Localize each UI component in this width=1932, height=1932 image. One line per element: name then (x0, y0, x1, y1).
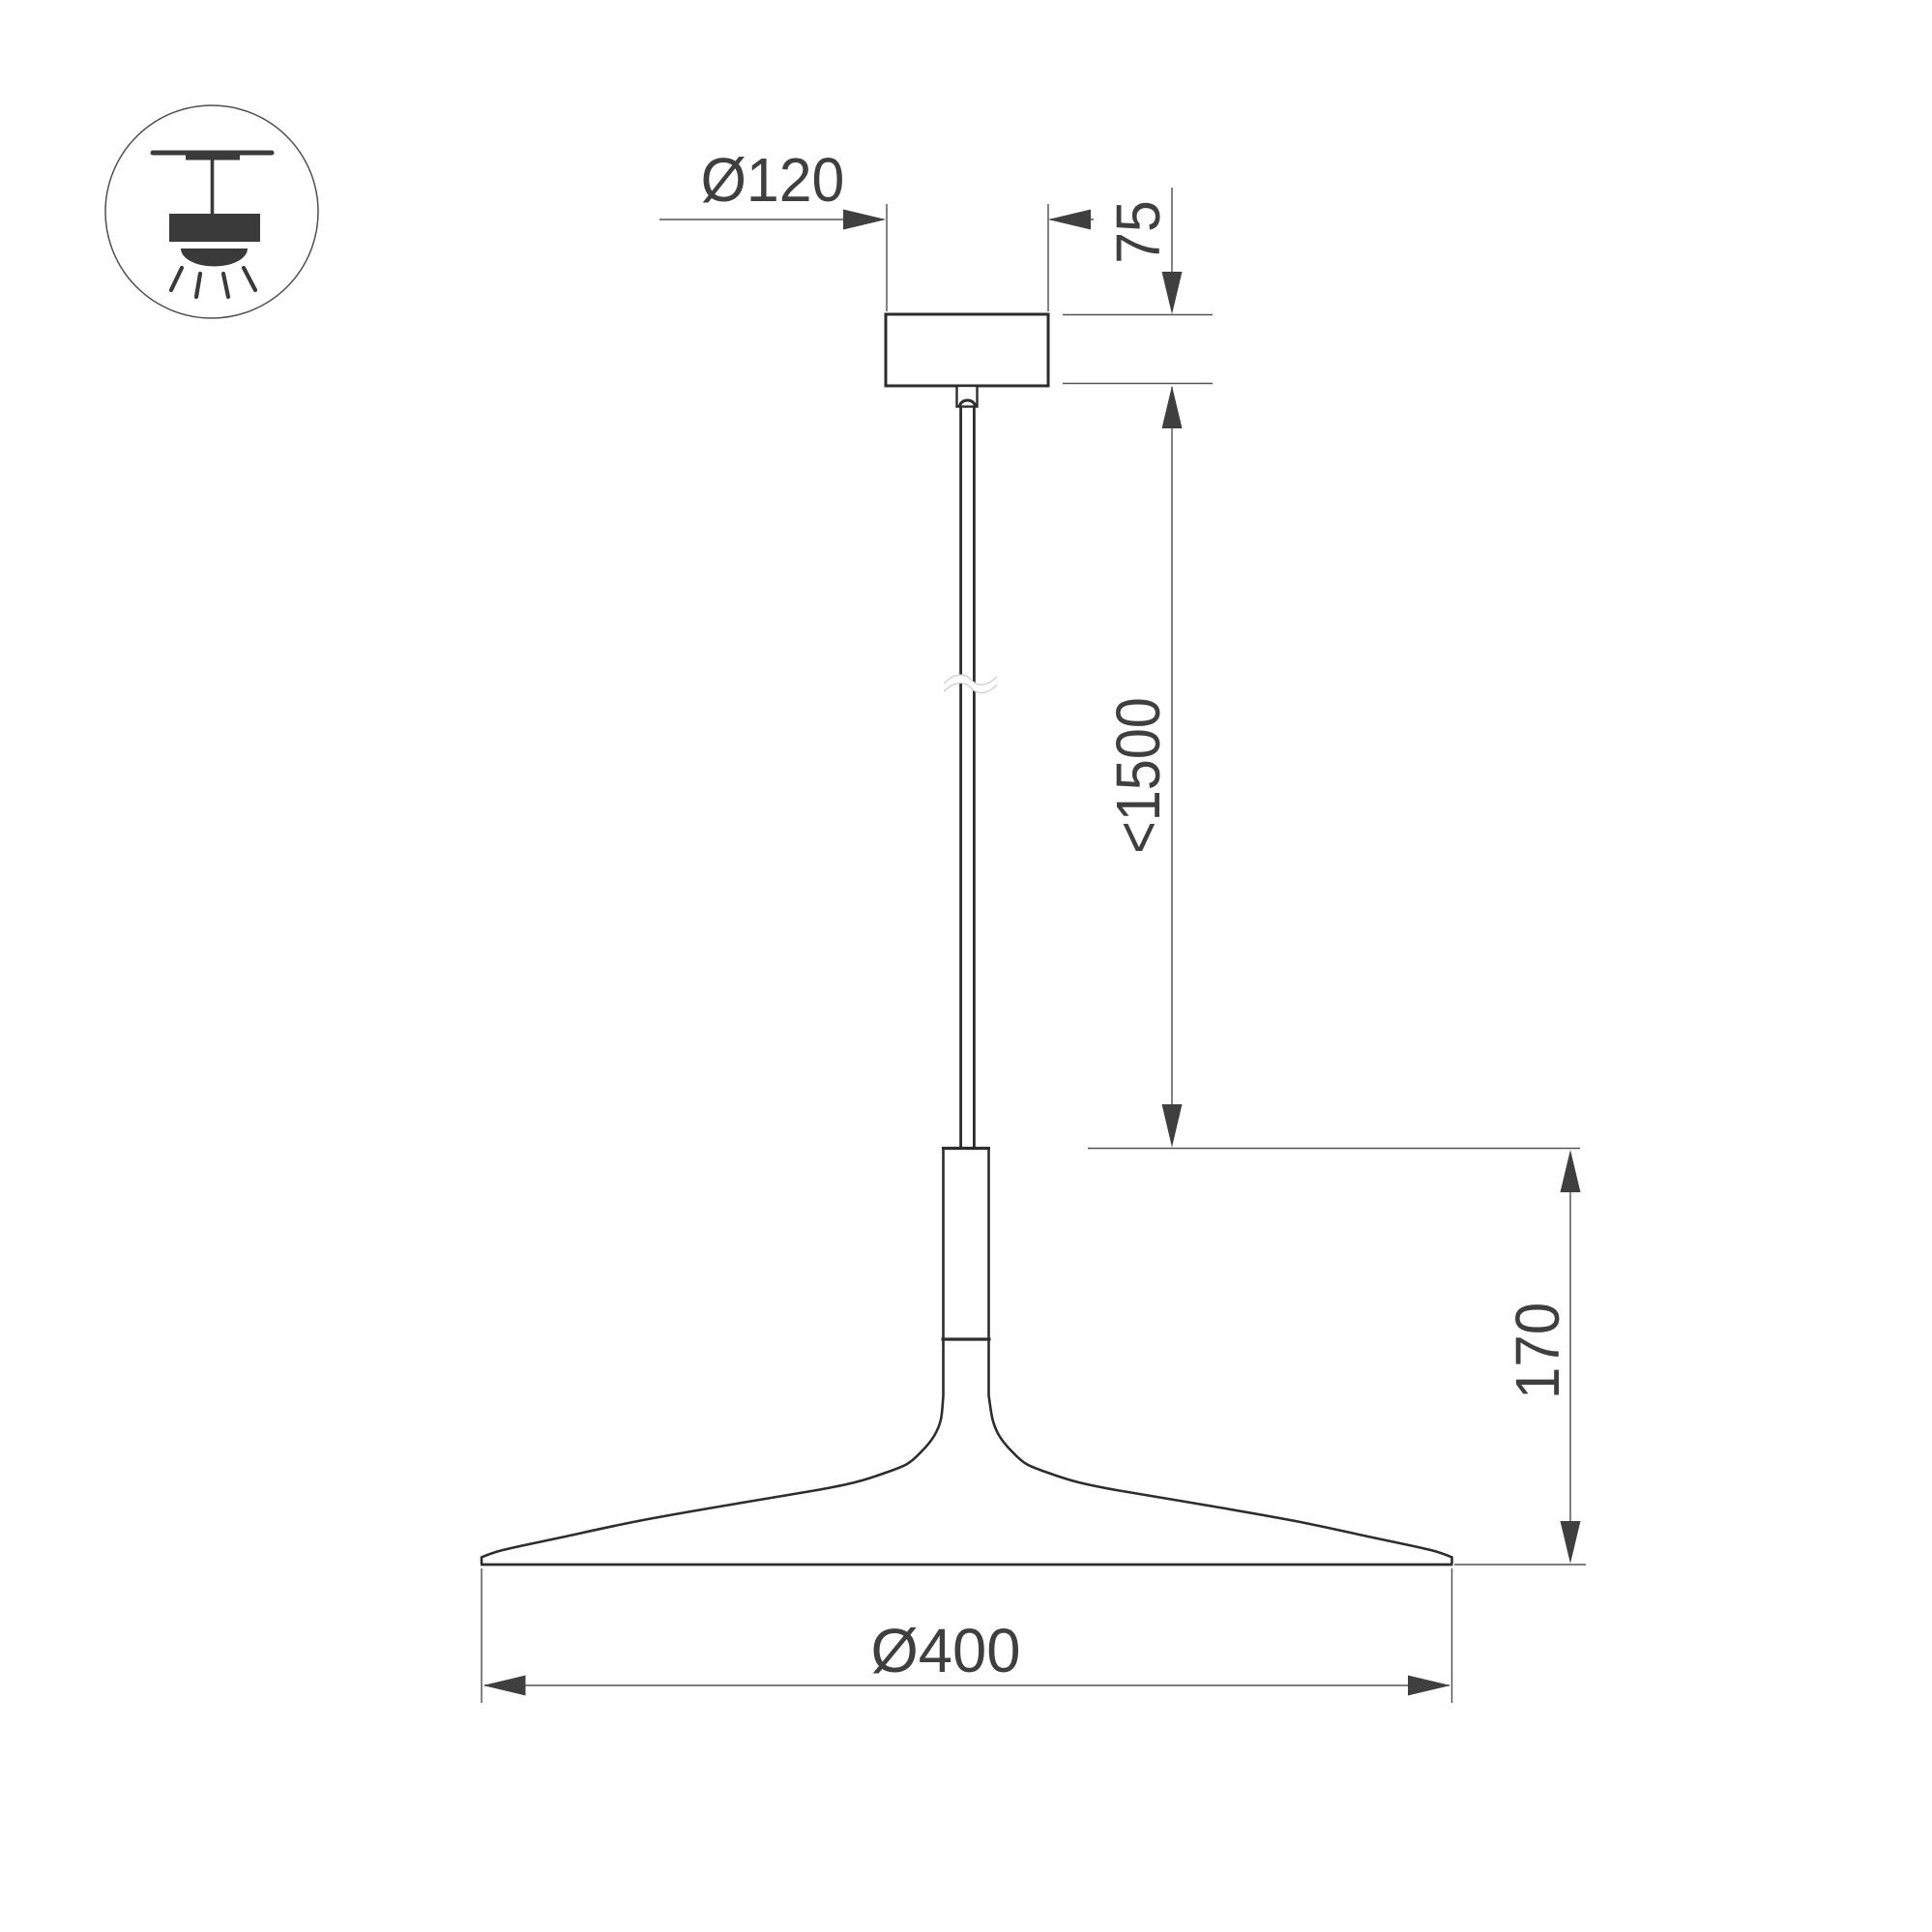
svg-text:Ø400: Ø400 (871, 1617, 1021, 1685)
svg-text:170: 170 (1504, 1303, 1572, 1399)
svg-text:75: 75 (1104, 200, 1174, 263)
svg-text:<1500: <1500 (1103, 697, 1172, 854)
svg-text:Ø120: Ø120 (701, 146, 845, 216)
